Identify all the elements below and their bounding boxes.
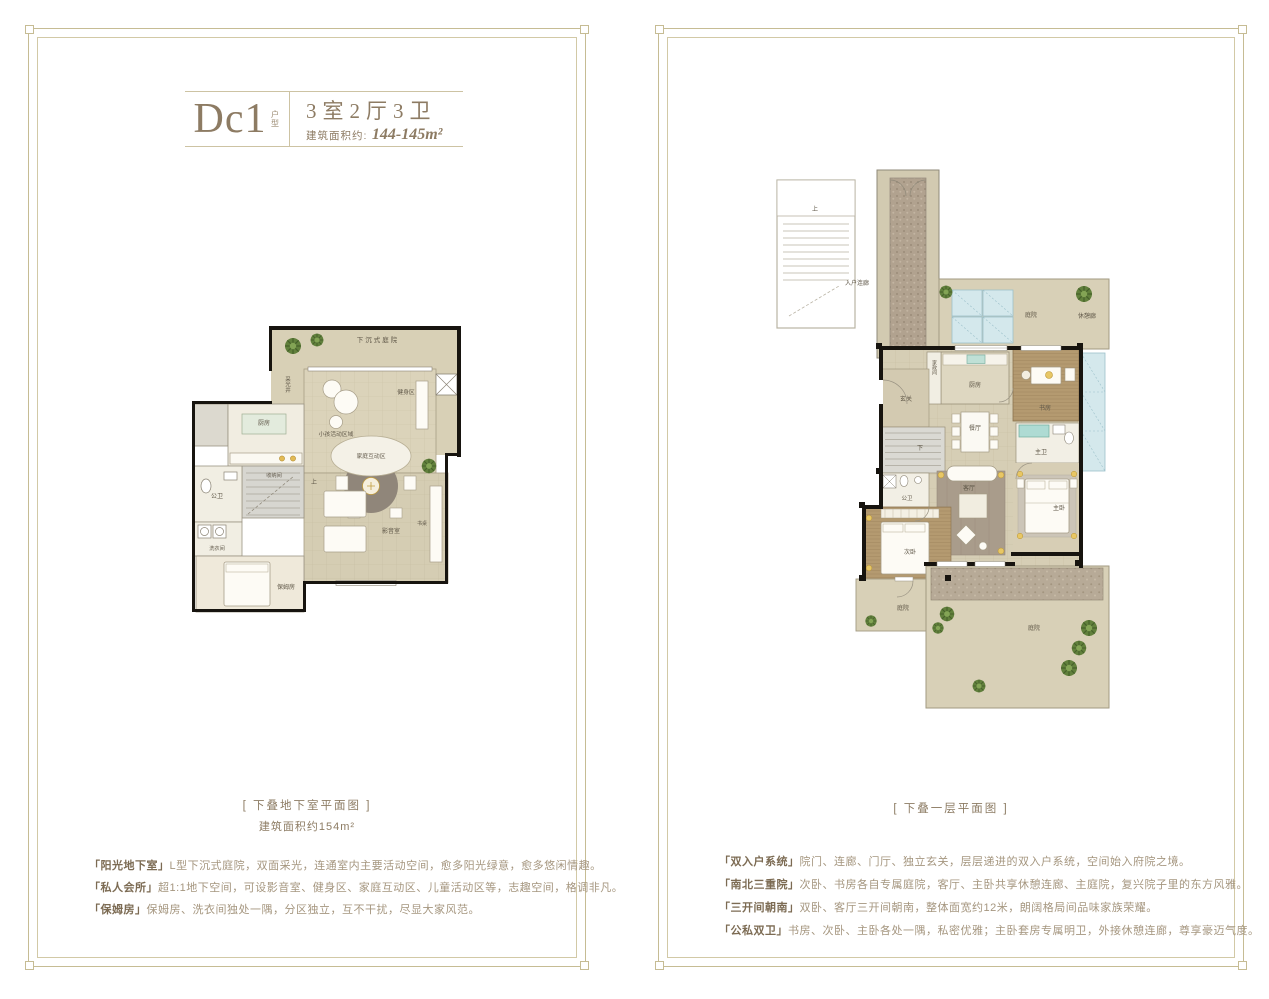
- room-label-courtyard-side: 庭院: [897, 604, 909, 612]
- plant-icon: [311, 334, 324, 347]
- room-label-entry-corridor: 入户连廊: [845, 279, 869, 287]
- feature-desc: 次卧、书房各自专属庭院，客厅、主卧共享休憩连廊、主庭院，复兴院子里的东方风雅。: [800, 879, 1249, 891]
- bed-icon: [224, 562, 270, 606]
- feature-term: 「私人会所」: [89, 882, 158, 894]
- room-label-sunken-courtyard: 下沉式庭院: [357, 335, 400, 344]
- frame-corner-icon: [25, 961, 34, 970]
- feature-term: 「公私双卫」: [719, 925, 788, 937]
- feature-desc: 书房、次卧、主卧各处一隅，私密优雅；主卧套房专属明卫，外接休憩连廊，尊享豪迈气度…: [788, 925, 1260, 937]
- room-label-storage: 收纳间: [266, 471, 282, 479]
- room-label-kids-area: 小孩活动区域: [319, 430, 354, 438]
- kitchen: [941, 352, 1009, 404]
- plant-icon: [285, 338, 301, 354]
- east-glass-corridor-icon: [1081, 353, 1105, 471]
- window-icon: [308, 367, 432, 371]
- lightwell-shaft-icon: [436, 374, 457, 395]
- feature-desc: 保姆房、洗衣间独处一隅，分区独立，互不干扰，尽显大家风范。: [147, 904, 481, 916]
- frame-corner-icon: [1238, 961, 1247, 970]
- master-bathroom: [1016, 423, 1079, 463]
- basement-kitchen: [228, 404, 304, 466]
- room-label-housework: 家政间: [931, 359, 937, 376]
- dining-area: [952, 412, 998, 452]
- sofa-icon: [947, 466, 997, 481]
- room-label-kitchen: 厨房: [258, 419, 270, 427]
- shared-stairs-up-label: 上: [812, 205, 818, 213]
- frame-corner-icon: [1238, 25, 1247, 34]
- left-panel: Dc1 户型 3室2厅3卫 建筑面积约: 144-145m²: [28, 28, 586, 967]
- room-label-bath: 公卫: [901, 495, 913, 502]
- area-line: 建筑面积约: 144-145m²: [306, 126, 463, 144]
- area-label: 建筑面积约:: [306, 130, 367, 142]
- right-feature-list: 「双入户系统」院门、连廊、门厅、独立玄关，层层递进的双入户系统，空间始入府院之境…: [719, 851, 1227, 943]
- stairs-up-label: 上: [311, 478, 317, 486]
- area-value: 144-145m²: [372, 126, 443, 143]
- toilet-icon: [1065, 432, 1074, 444]
- feature-line: 「阳光地下室」L型下沉式庭院，双面采光，连通室内主要活动空间，愈多阳光绿意，愈多…: [89, 855, 569, 877]
- feature-desc: 院门、连廊、门厅、独立玄关，层层递进的双入户系统，空间始入府院之境。: [800, 856, 1191, 868]
- room-label-gym: 健身区: [397, 388, 415, 396]
- entry-corridor: [877, 170, 939, 358]
- room-label-nanny: 保姆房: [277, 583, 295, 591]
- terrace-icon: [931, 568, 1103, 600]
- room-label-dining: 餐厅: [969, 424, 981, 432]
- plant-icon: [1072, 641, 1086, 655]
- left-plan-area: 建筑面积约154m²: [29, 818, 585, 834]
- shared-staircase-icon: 上: [777, 180, 855, 328]
- plant-icon: [1076, 286, 1092, 302]
- frame-corner-icon: [580, 25, 589, 34]
- feature-term: 「保姆房」: [89, 904, 147, 916]
- frame-corner-icon: [655, 961, 664, 970]
- room-label-rest-corridor: 休憩廊: [1078, 312, 1096, 320]
- room-label-courtyard-top: 庭院: [1025, 311, 1037, 319]
- room-label-master-bath: 主卫: [1035, 448, 1047, 456]
- internal-stairs-icon: [881, 427, 945, 473]
- room-label-bath: 公卫: [211, 493, 223, 500]
- right-plan-caption: [ 下叠一层平面图 ]: [659, 800, 1243, 816]
- plant-icon: [932, 622, 943, 633]
- main-courtyard: [926, 566, 1109, 708]
- feature-term: 「三开间朝南」: [719, 902, 800, 914]
- plant-icon: [940, 607, 954, 621]
- basement-floor-plan: 下沉式庭院 采光井 小孩活动区域 健身区 家庭互动区 厨房 收纳间 公卫 洗衣间…: [186, 326, 466, 616]
- right-panel: 上 入户连廊 庭院: [658, 28, 1244, 967]
- feature-desc: L型下沉式庭院，双面采光，连通室内主要活动空间，愈多阳光绿意，愈多悠闲情趣。: [170, 860, 602, 872]
- feature-line: 「双入户系统」院门、连廊、门厅、独立玄关，层层递进的双入户系统，空间始入府院之境…: [719, 851, 1227, 874]
- room-label-study: 书房: [1039, 404, 1051, 412]
- room-label-living: 客厅: [963, 484, 975, 492]
- basement-entry: [194, 404, 228, 446]
- unit-spec-cell: 3室2厅3卫 建筑面积约: 144-145m²: [290, 92, 463, 146]
- first-floor-plan: 上 入户连廊 庭院: [769, 166, 1116, 711]
- feature-desc: 超1:1地下空间，可设影音室、健身区、家庭互动区、儿童活动区等，志趣空间，格调非…: [158, 882, 623, 894]
- room-label-kitchen: 厨房: [969, 381, 981, 389]
- room-label-second-bed: 次卧: [904, 548, 916, 556]
- left-plan-caption: [ 下叠地下室平面图 ]: [29, 797, 585, 813]
- plant-icon: [1081, 620, 1097, 636]
- unit-code-suffix: 户型: [269, 110, 280, 128]
- feature-line: 「私人会所」超1:1地下空间，可设影音室、健身区、家庭互动区、儿童活动区等，志趣…: [89, 877, 569, 899]
- unit-code: Dc1: [194, 98, 267, 140]
- feature-line: 「三开间朝南」双卧、客厅三开间朝南，整体面宽约12米，朗阔格局间品味家族荣耀。: [719, 897, 1227, 920]
- room-label-desk: 书桌: [417, 520, 427, 527]
- unit-title-block: Dc1 户型 3室2厅3卫 建筑面积约: 144-145m²: [185, 91, 463, 147]
- room-label-master-bed: 主卧: [1053, 504, 1065, 512]
- bathtub-icon: [1019, 425, 1049, 437]
- plant-icon: [973, 680, 986, 693]
- room-label-light-well: 采光井: [284, 375, 291, 394]
- feature-term: 「阳光地下室」: [89, 860, 170, 872]
- plant-icon: [865, 615, 876, 626]
- frame-corner-icon: [655, 25, 664, 34]
- left-feature-list: 「阳光地下室」L型下沉式庭院，双面采光，连通室内主要活动空间，愈多阳光绿意，愈多…: [89, 855, 569, 921]
- room-label-courtyard-main: 庭院: [1028, 624, 1040, 632]
- stairs-down-label: 下: [917, 445, 923, 452]
- feature-line: 「公私双卫」书房、次卧、主卧各处一隅，私密优雅；主卧套房专属明卫，外接休憩连廊，…: [719, 920, 1227, 943]
- room-label-laundry: 洗衣间: [209, 544, 225, 552]
- feature-line: 「南北三重院」次卧、书房各自专属庭院，客厅、主卧共享休憩连廊、主庭院，复兴院子里…: [719, 874, 1227, 897]
- gym-equipment-icon: [416, 381, 428, 429]
- feature-desc: 双卧、客厅三开间朝南，整体面宽约12米，朗阔格局间品味家族荣耀。: [800, 902, 1158, 914]
- feature-term: 「南北三重院」: [719, 879, 800, 891]
- frame-corner-icon: [580, 961, 589, 970]
- frame-corner-icon: [25, 25, 34, 34]
- feature-line: 「保姆房」保姆房、洗衣间独处一隅，分区独立，互不干扰，尽显大家风范。: [89, 899, 569, 921]
- master-bedroom: [1013, 463, 1081, 554]
- plant-icon: [422, 459, 436, 473]
- room-label-family-zone: 家庭互动区: [357, 452, 386, 460]
- unit-code-cell: Dc1 户型: [185, 92, 289, 146]
- plant-icon: [1061, 660, 1077, 676]
- feature-term: 「双入户系统」: [719, 856, 800, 868]
- plant-icon: [940, 286, 953, 299]
- rooms-spec: 3室2厅3卫: [306, 95, 463, 125]
- room-label-media: 影音室: [382, 527, 400, 535]
- dining-table-icon: [961, 412, 989, 452]
- nanny-room: [196, 556, 304, 612]
